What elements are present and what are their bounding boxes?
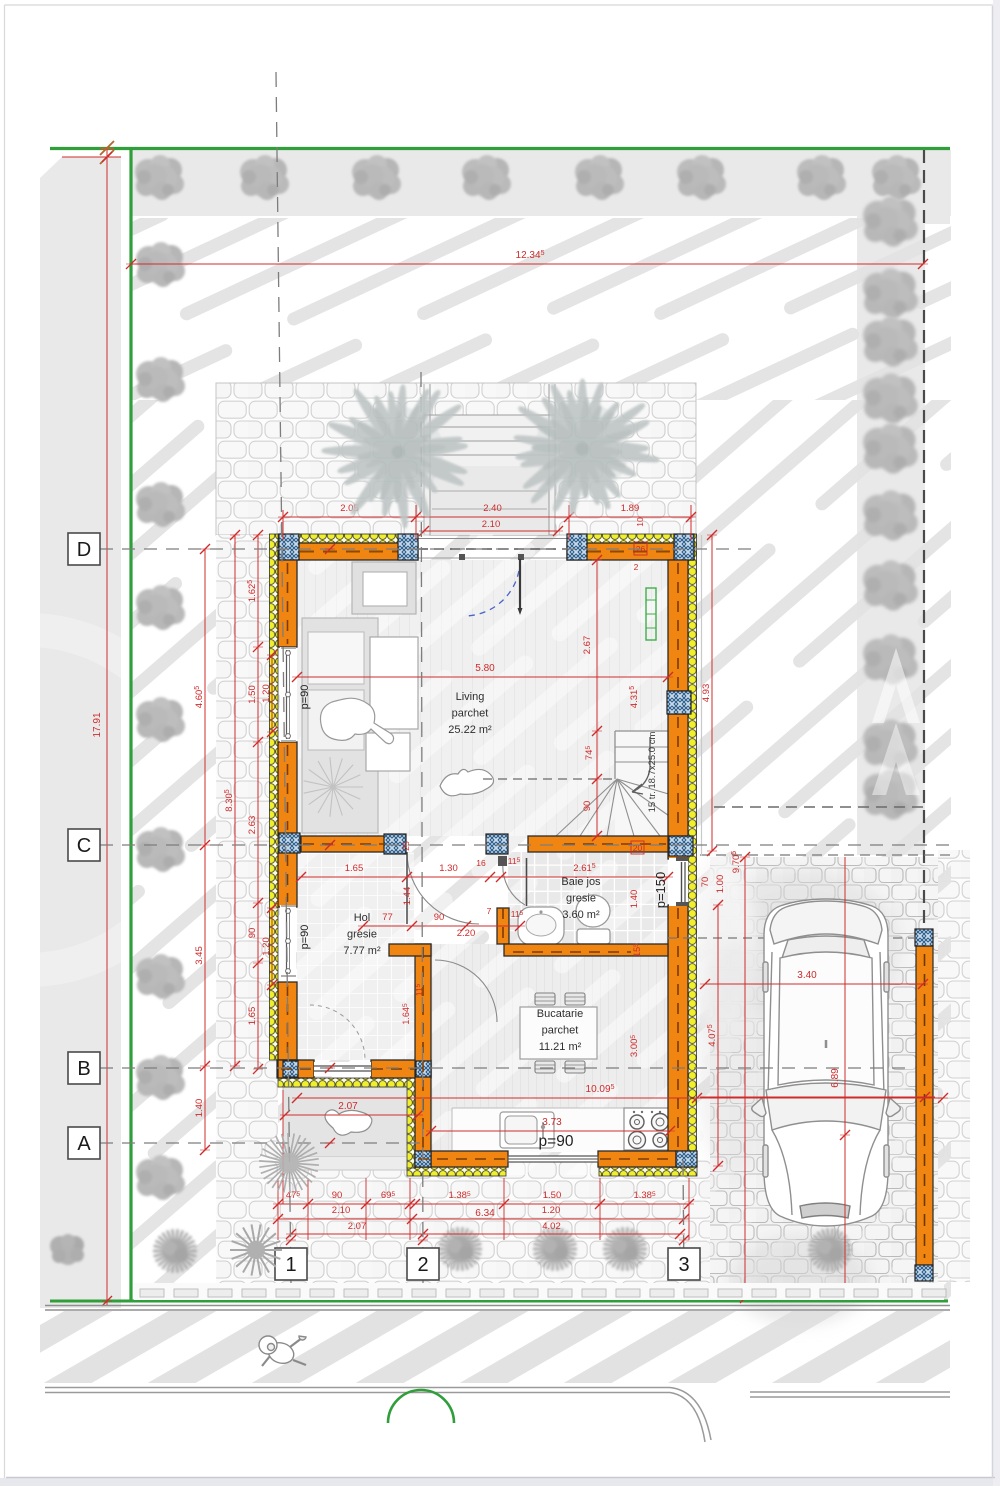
svg-text:3.60 m²: 3.60 m² [562,909,600,921]
svg-text:25.22 m²: 25.22 m² [448,724,492,736]
svg-text:2.40: 2.40 [483,503,502,514]
svg-text:11.21 m²: 11.21 m² [539,1041,582,1053]
svg-text:7.77 m²: 7.77 m² [343,945,381,957]
svg-text:3.40: 3.40 [797,970,817,981]
svg-text:3: 3 [678,1254,689,1276]
svg-text:1.20: 1.20 [261,937,272,956]
svg-text:p=150: p=150 [653,872,668,909]
svg-text:parchet: parchet [452,708,489,720]
svg-text:2.20: 2.20 [457,928,476,939]
svg-text:15 tr. 18.7x25.0 cm: 15 tr. 18.7x25.0 cm [647,732,658,813]
svg-text:17.91: 17.91 [92,712,103,737]
svg-text:4.02: 4.02 [542,1221,561,1232]
svg-text:1.00: 1.00 [715,875,726,894]
svg-text:1.50: 1.50 [543,1190,562,1201]
svg-text:1.89: 1.89 [621,503,640,514]
svg-text:2.07: 2.07 [348,1221,367,1232]
svg-text:D: D [77,539,91,561]
svg-text:1.65: 1.65 [345,863,364,874]
svg-text:1.30: 1.30 [439,863,458,874]
svg-text:10.095: 10.095 [586,1084,615,1095]
svg-text:C: C [77,835,91,857]
svg-text:1: 1 [285,1254,296,1276]
svg-text:90: 90 [582,801,593,812]
svg-text:90: 90 [332,1190,343,1201]
svg-text:1.20: 1.20 [261,684,272,703]
svg-text:2.67: 2.67 [582,636,593,655]
svg-text:1.40: 1.40 [194,1099,205,1118]
svg-text:1.65: 1.65 [247,1007,258,1026]
svg-text:77: 77 [382,912,393,923]
svg-text:p=90: p=90 [299,685,311,710]
svg-text:2.10: 2.10 [482,519,501,530]
svg-text:90: 90 [247,928,258,939]
svg-text:parchet: parchet [542,1025,579,1037]
svg-text:Hol: Hol [354,912,371,924]
svg-text:2.10: 2.10 [332,1205,351,1216]
svg-text:2: 2 [417,1254,428,1276]
svg-text:p=90: p=90 [299,925,311,950]
svg-text:gresie: gresie [347,929,377,941]
svg-text:16: 16 [476,858,486,868]
svg-text:5.80: 5.80 [475,663,495,674]
svg-text:90: 90 [434,912,445,923]
svg-text:1.44: 1.44 [402,887,413,906]
svg-text:12.345: 12.345 [516,250,545,261]
svg-text:A: A [77,1133,91,1155]
svg-text:p=90: p=90 [539,1133,574,1150]
svg-text:Living: Living [456,691,485,703]
svg-text:Baie jos: Baie jos [561,876,601,888]
svg-text:4.93: 4.93 [701,684,712,703]
svg-text:gresie: gresie [566,893,596,905]
svg-text:1.50: 1.50 [247,685,258,704]
svg-text:70: 70 [700,877,711,888]
svg-text:7: 7 [487,906,492,916]
svg-text:B: B [77,1058,90,1080]
svg-text:3.45: 3.45 [194,946,205,965]
svg-text:3.73: 3.73 [542,1117,562,1128]
svg-text:6.34: 6.34 [475,1208,495,1219]
svg-text:1.20: 1.20 [542,1205,561,1216]
svg-text:10: 10 [635,517,645,527]
svg-text:6.89: 6.89 [830,1068,841,1088]
svg-text:2: 2 [634,562,639,572]
svg-text:2.07: 2.07 [338,1101,358,1112]
svg-text:1.40: 1.40 [629,890,640,909]
svg-text:25: 25 [401,841,411,851]
svg-text:2.63: 2.63 [247,816,258,835]
svg-text:Bucatarie: Bucatarie [537,1008,583,1020]
